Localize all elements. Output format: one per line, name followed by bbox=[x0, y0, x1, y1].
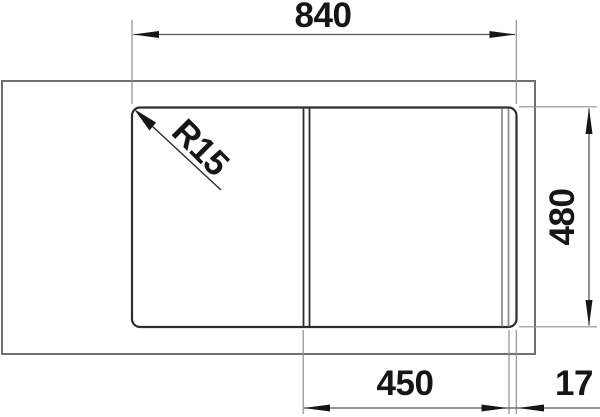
arrow-bowl-left bbox=[304, 405, 330, 412]
arrow-bowl-right bbox=[482, 405, 508, 412]
dim-label-bowl-width: 450 bbox=[345, 366, 465, 402]
arrow-depth-top bbox=[586, 108, 593, 134]
dim-label-edge-offset: 17 bbox=[514, 366, 600, 402]
arrow-depth-bottom bbox=[586, 300, 593, 326]
arrow-width-right bbox=[490, 31, 516, 38]
countertop-outline bbox=[2, 81, 535, 354]
dim-label-overall-depth: 480 bbox=[545, 157, 581, 277]
drawing-linework bbox=[0, 0, 600, 417]
arrow-width-left bbox=[133, 31, 159, 38]
arrow-edge-offset bbox=[518, 405, 544, 412]
sink-technical-drawing: 840 480 450 17 R15 bbox=[0, 0, 600, 417]
dim-label-overall-width: 840 bbox=[263, 0, 383, 34]
